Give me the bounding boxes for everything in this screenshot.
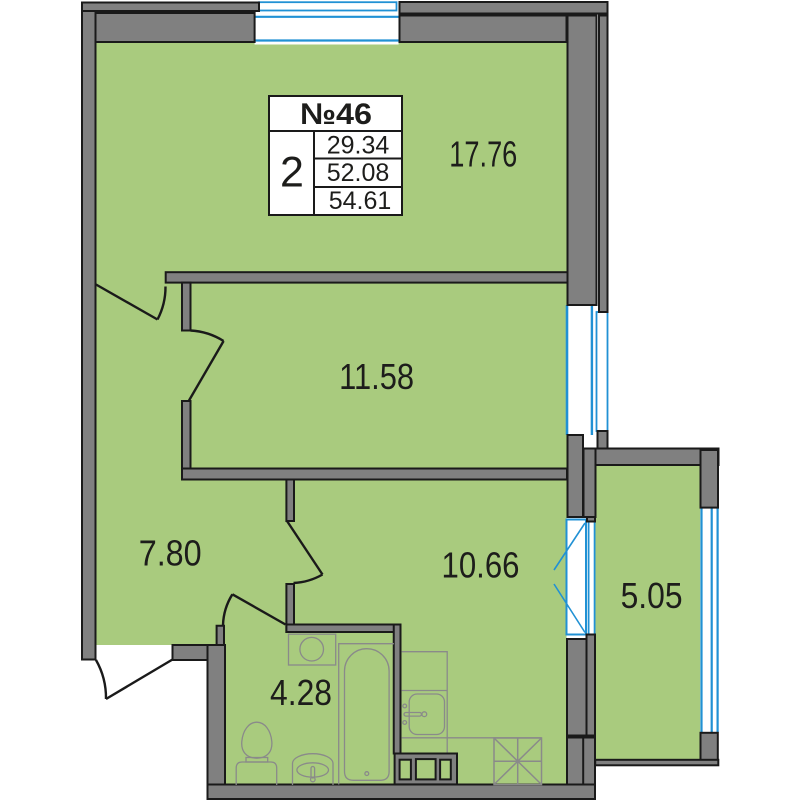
svg-text:29.34: 29.34: [327, 132, 390, 160]
svg-text:5.05: 5.05: [621, 575, 683, 616]
svg-text:52.08: 52.08: [327, 159, 390, 187]
svg-text:4.28: 4.28: [270, 672, 332, 713]
svg-text:2: 2: [280, 149, 304, 197]
svg-text:17.76: 17.76: [449, 134, 517, 175]
svg-text:54.61: 54.61: [329, 187, 392, 215]
svg-text:7.80: 7.80: [139, 533, 202, 574]
svg-text:11.58: 11.58: [339, 356, 414, 397]
svg-text:№46: №46: [300, 98, 372, 131]
svg-text:10.66: 10.66: [442, 545, 520, 586]
